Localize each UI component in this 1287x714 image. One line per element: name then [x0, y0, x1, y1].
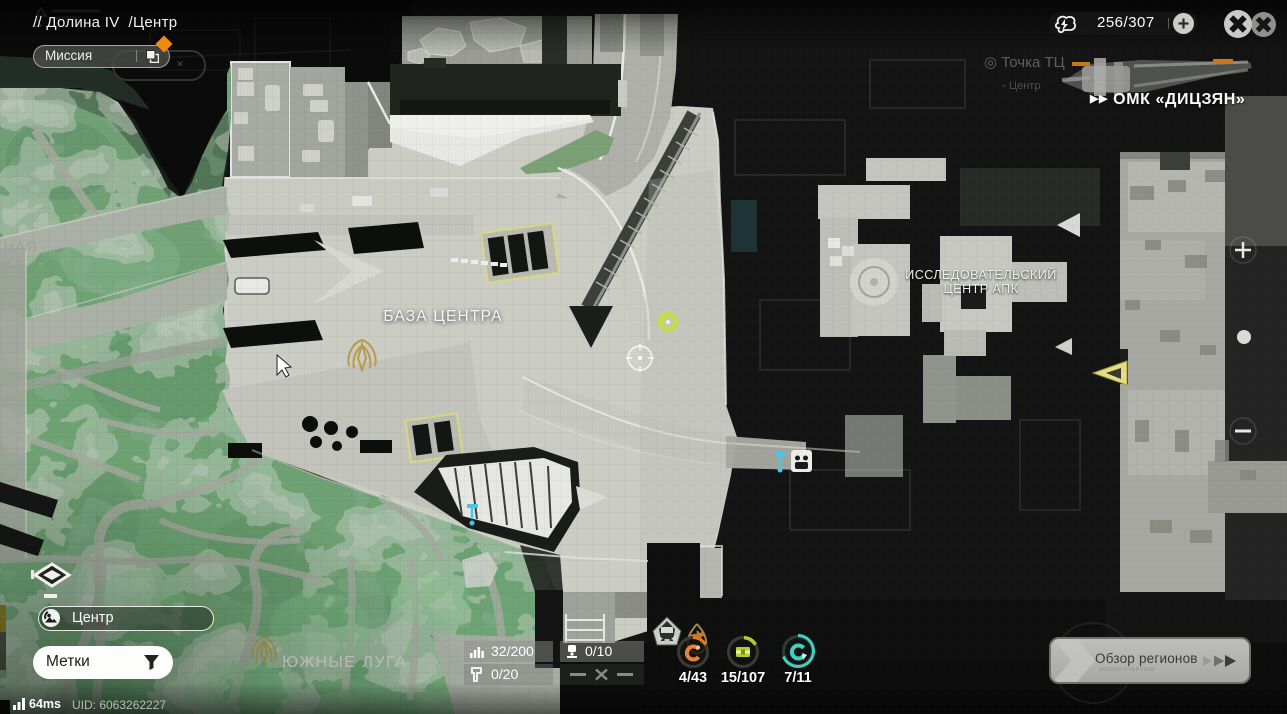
svg-text:НАЯ: НАЯ [3, 239, 38, 256]
svg-text:ИССЛЕДОВАТЕЛЬСКИЙ: ИССЛЕДОВАТЕЛЬСКИЙ [905, 267, 1057, 282]
svg-text:ЦЕНТР АПК: ЦЕНТР АПК [943, 282, 1018, 296]
svg-text:КА: КА [4, 255, 25, 272]
svg-text:ЮЖНЫЕ ЛУГА: ЮЖНЫЕ ЛУГА [282, 654, 407, 671]
svg-text:БАЗА ЦЕНТРА: БАЗА ЦЕНТРА [383, 308, 502, 325]
